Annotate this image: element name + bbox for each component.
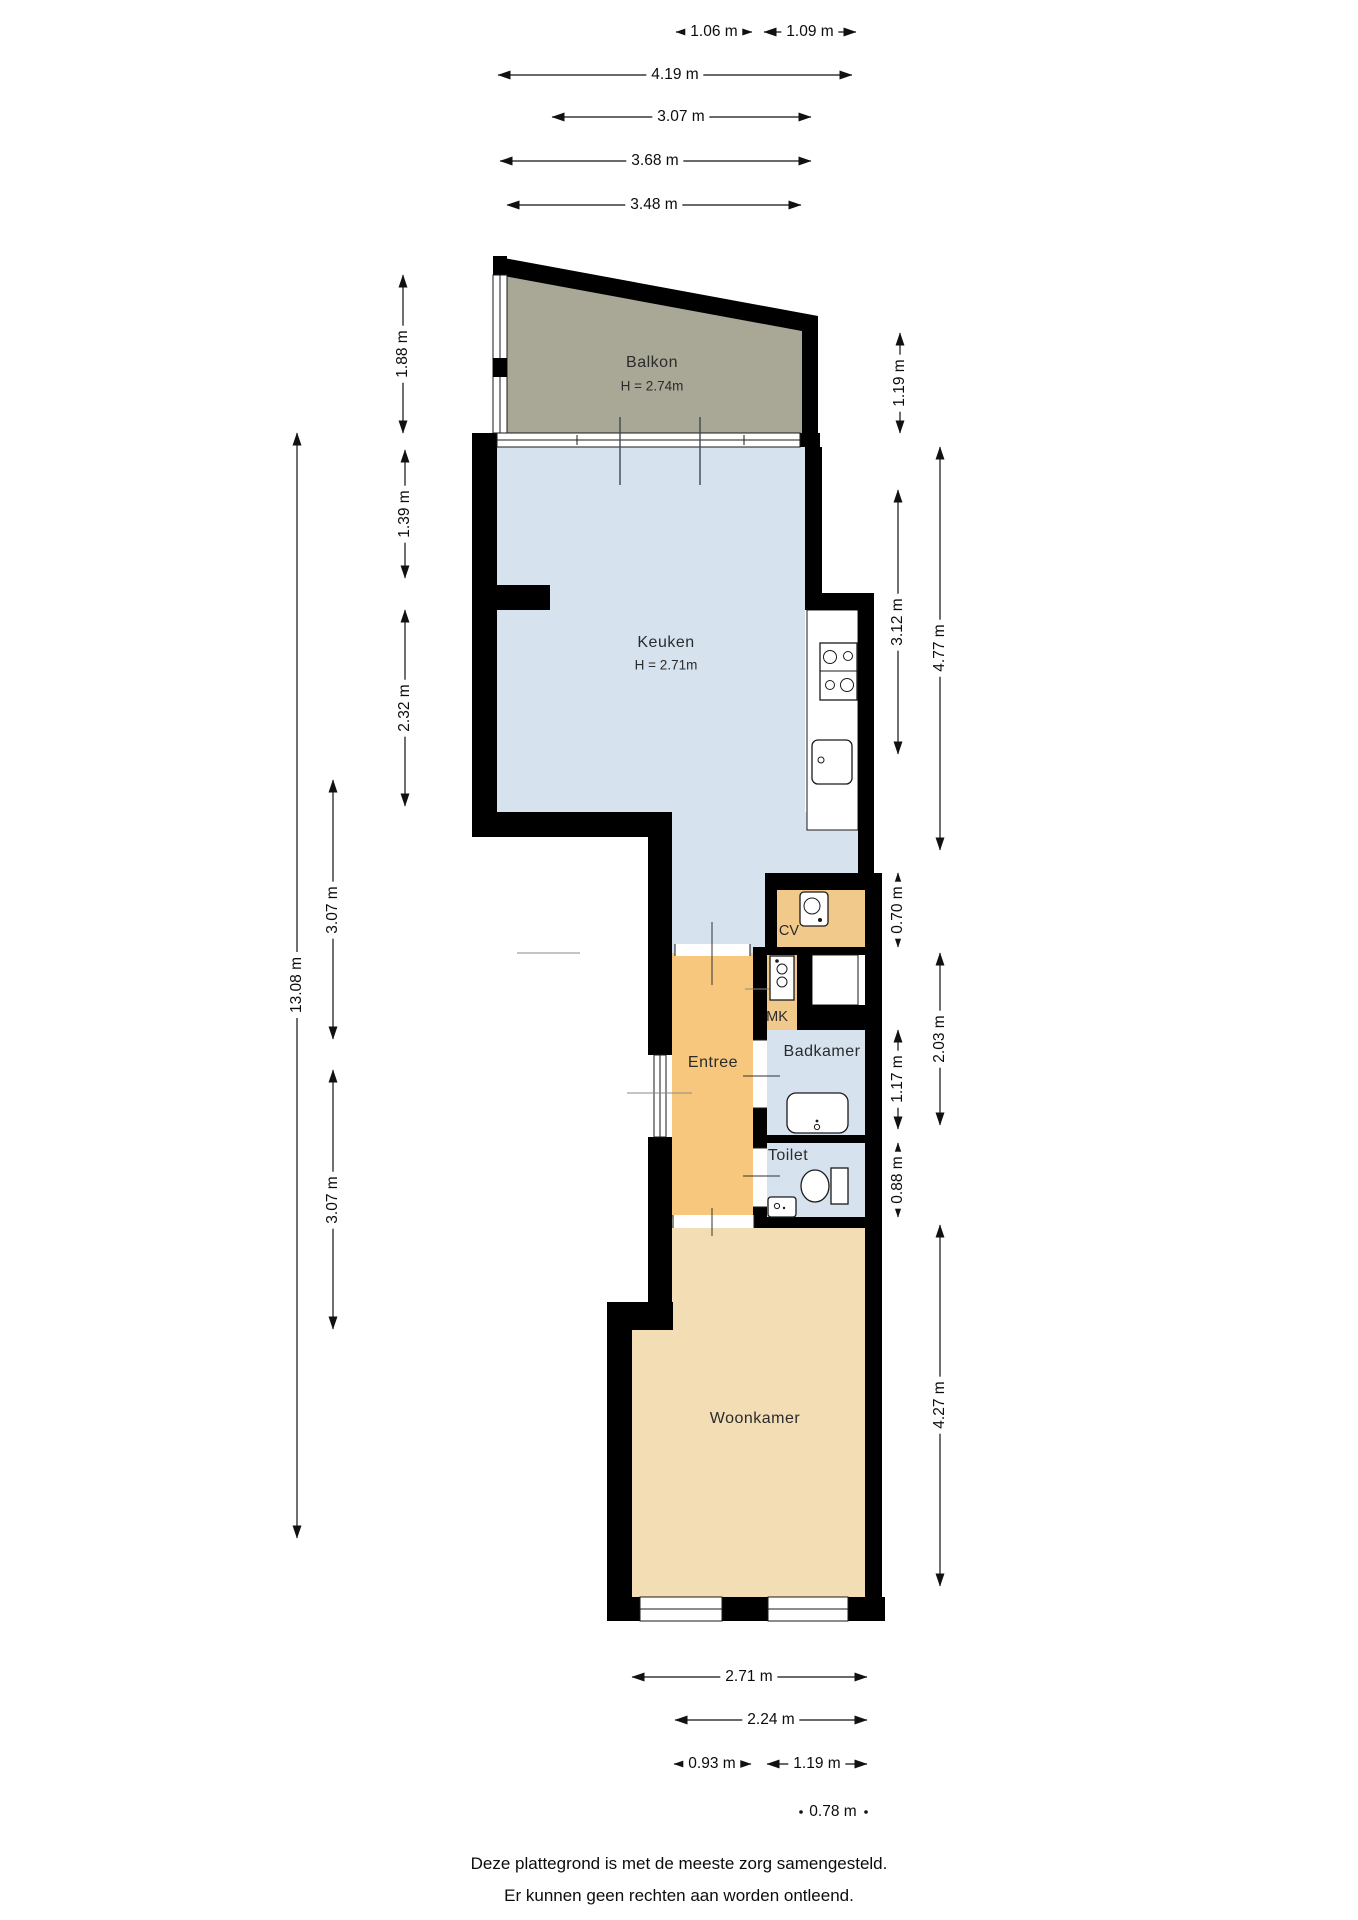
dim-top-4-19: 4.19 m (646, 66, 703, 84)
dim-right-0-70: 0.70 m (889, 881, 907, 938)
room-label-toilet: Toilet (768, 1147, 808, 1165)
dim-top-3-48: 3.48 m (625, 196, 682, 214)
dim-left-3-07-a: 3.07 m (324, 881, 342, 938)
dim-right-4-27: 4.27 m (931, 1376, 949, 1433)
dim-top-3-68: 3.68 m (626, 152, 683, 170)
dim-top-3-07: 3.07 m (652, 108, 709, 126)
dim-right-2-03: 2.03 m (931, 1010, 949, 1067)
room-label-badkamer: Badkamer (784, 1043, 861, 1061)
room-height-keuken: H = 2.71m (635, 658, 698, 673)
dim-bottom-2-24: 2.24 m (742, 1711, 799, 1729)
dim-bottom-1-19: 1.19 m (788, 1755, 845, 1773)
dim-bottom-2-71: 2.71 m (720, 1668, 777, 1686)
room-label-keuken: Keuken (637, 634, 694, 652)
room-label-entree: Entree (688, 1054, 738, 1072)
footer-disclaimer-line2: Er kunnen geen rechten aan worden ontlee… (504, 1886, 854, 1906)
dim-bottom-0-93: 0.93 m (683, 1755, 740, 1773)
dim-right-3-12: 3.12 m (889, 593, 907, 650)
dim-left-1-88: 1.88 m (394, 325, 412, 382)
dim-left-1-39: 1.39 m (396, 485, 414, 542)
dim-left-13-08: 13.08 m (288, 952, 306, 1018)
room-label-woonkamer: Woonkamer (710, 1410, 800, 1428)
room-height-balkon: H = 2.74m (621, 379, 684, 394)
hand-basin-icon (768, 1197, 796, 1217)
room-label-cv: CV (779, 923, 799, 939)
dim-right-4-77: 4.77 m (931, 619, 949, 676)
dim-left-3-07-b: 3.07 m (324, 1171, 342, 1228)
toilet-icon (831, 1168, 848, 1204)
dim-top-1-06: 1.06 m (685, 23, 742, 41)
room-label-mk: MK (766, 1009, 788, 1025)
room-label-balkon: Balkon (626, 354, 678, 372)
sink-icon (812, 740, 852, 784)
room-keuken (497, 447, 805, 812)
washer-icon (770, 956, 794, 1000)
dim-right-0-88: 0.88 m (889, 1151, 907, 1208)
dim-top-1-09: 1.09 m (781, 23, 838, 41)
dim-right-1-17: 1.17 m (889, 1050, 907, 1107)
room-woonkamer (672, 1225, 865, 1302)
floorplan-drawing (0, 0, 1358, 1920)
dim-right-1-19: 1.19 m (891, 354, 909, 411)
dim-bottom-0-78: 0.78 m (804, 1803, 861, 1821)
footer-disclaimer-line1: Deze plattegrond is met de meeste zorg s… (471, 1854, 888, 1874)
dim-left-2-32: 2.32 m (396, 679, 414, 736)
bathtub-icon (787, 1093, 848, 1133)
floorplan-page: Balkon H = 2.74m Keuken H = 2.71m CV MK … (0, 0, 1358, 1920)
room-entree (672, 953, 753, 1218)
